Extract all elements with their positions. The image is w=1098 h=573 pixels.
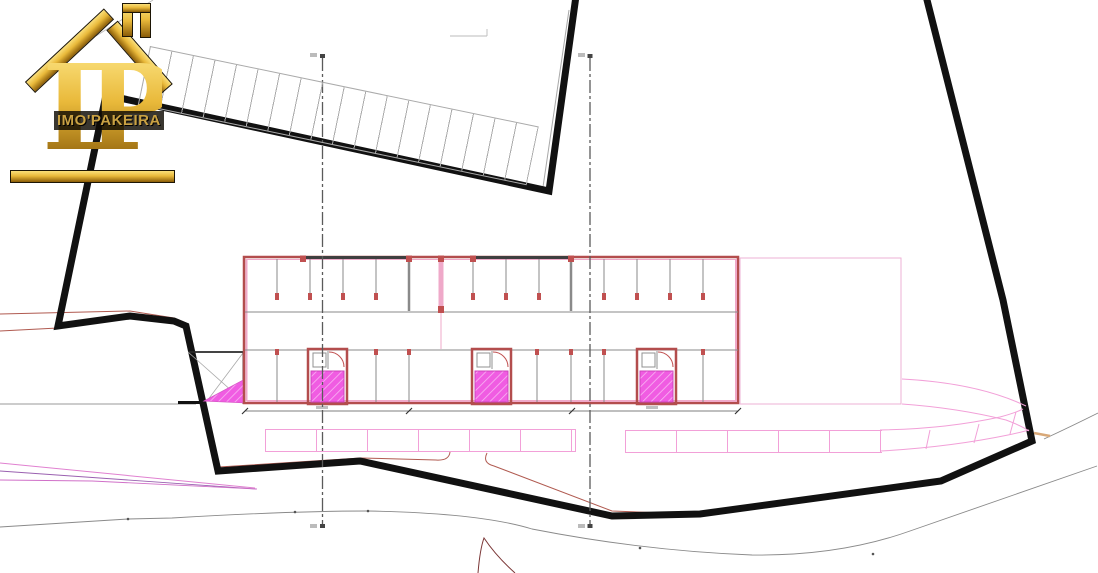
exterior-ramp — [0, 352, 247, 404]
logo-monogram: IP — [42, 49, 162, 167]
chimney-cap-icon — [122, 3, 151, 13]
extension-outline — [740, 258, 1029, 431]
section-label — [578, 524, 585, 528]
section-label — [310, 524, 317, 528]
dimension-line — [242, 406, 741, 414]
company-logo: IP IMO'PAKEIRA — [4, 0, 214, 200]
logo-baseline-bar — [10, 170, 175, 183]
dimension-text — [646, 406, 658, 409]
section-label — [578, 53, 585, 57]
ramp-hatch-triangle — [204, 378, 247, 403]
site-plan-canvas: IP IMO'PAKEIRA — [0, 0, 1098, 573]
logo-brand-text: IMO'PAKEIRA — [54, 111, 164, 130]
roadside-parking-row-1 — [265, 429, 576, 452]
roadside-parking-row-2 — [625, 430, 882, 453]
roadside-parking-curve — [880, 409, 1029, 451]
section-label — [310, 53, 317, 57]
